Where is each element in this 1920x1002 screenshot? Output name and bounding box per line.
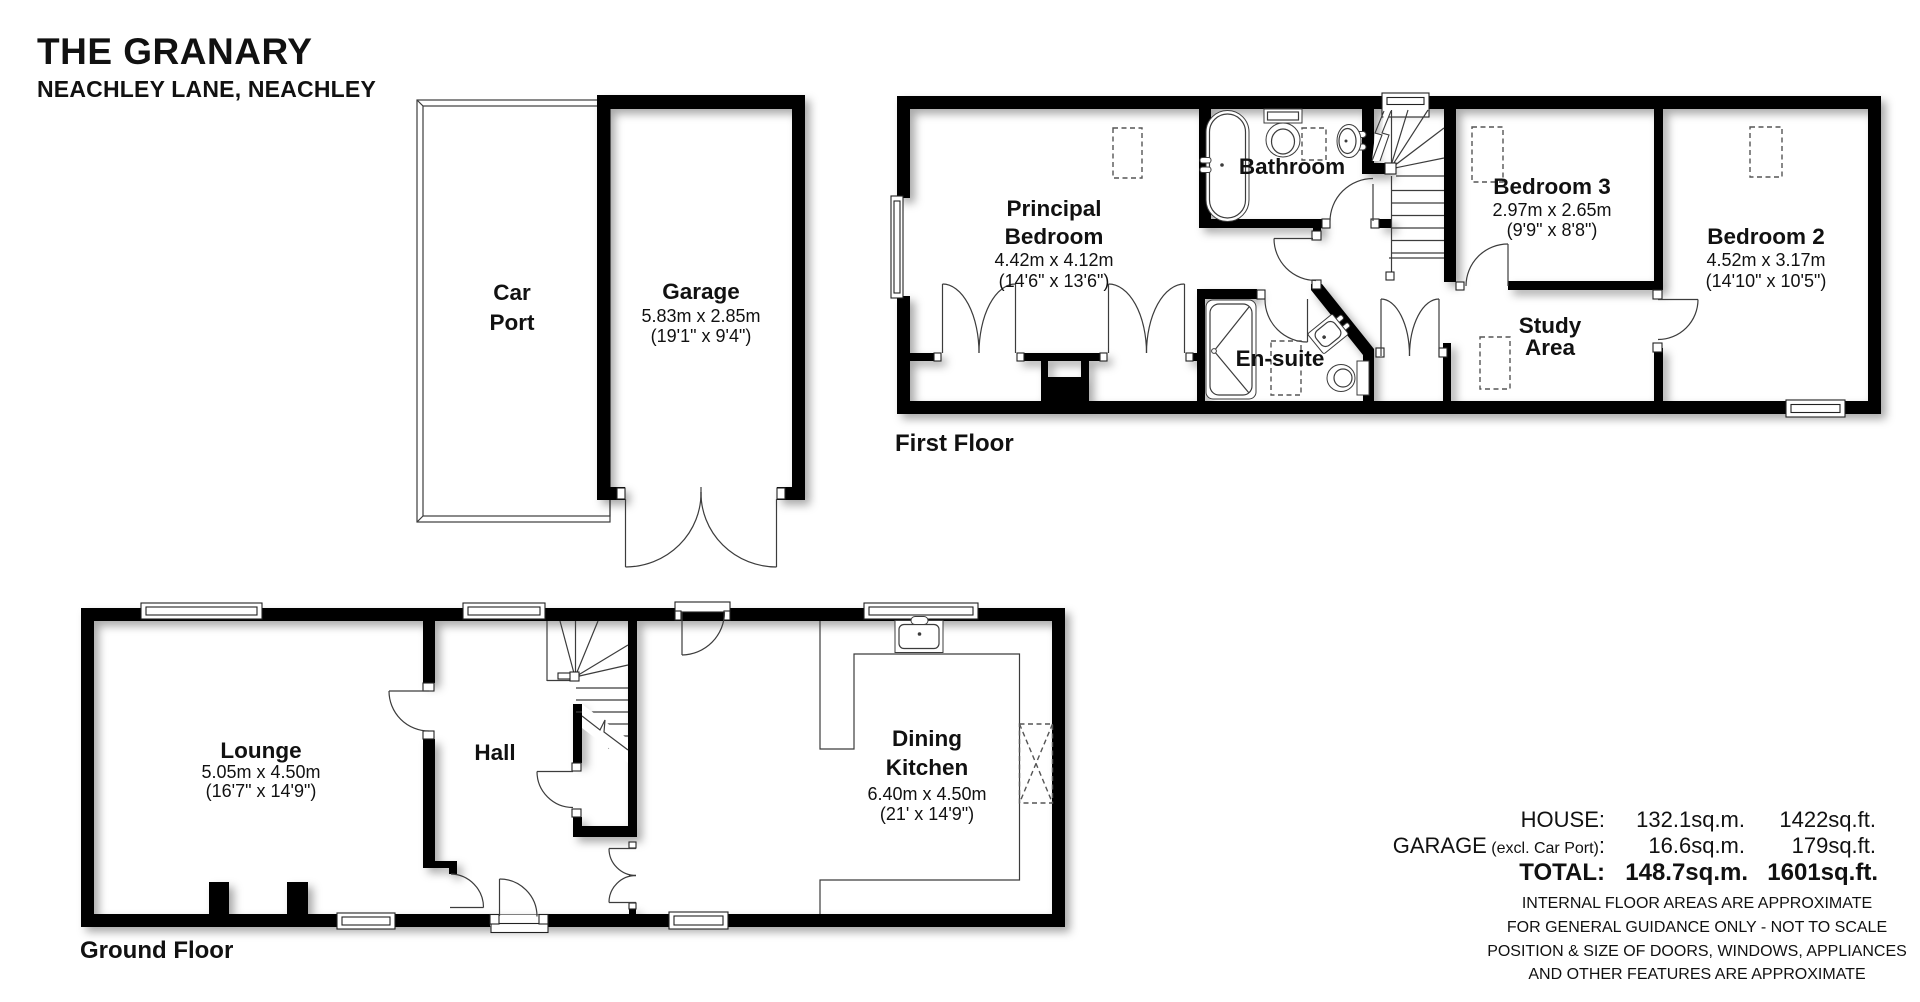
svg-text:Hall: Hall	[474, 740, 515, 765]
svg-text:Garage: Garage	[662, 279, 740, 304]
svg-text:Ground Floor: Ground Floor	[80, 937, 233, 964]
svg-text:148.7sq.m.: 148.7sq.m.	[1625, 859, 1748, 886]
svg-text:(14'10" x 10'5"): (14'10" x 10'5")	[1706, 271, 1827, 291]
svg-text:5.05m x 4.50m: 5.05m x 4.50m	[201, 762, 320, 782]
svg-text:First Floor: First Floor	[895, 430, 1014, 457]
svg-text:TOTAL:: TOTAL:	[1519, 859, 1605, 886]
svg-text:132.1sq.m.: 132.1sq.m.	[1636, 807, 1745, 832]
svg-text:AND OTHER FEATURES ARE APPROXI: AND OTHER FEATURES ARE APPROXIMATE	[1528, 966, 1865, 983]
svg-text:POSITION & SIZE OF DOORS, WIND: POSITION & SIZE OF DOORS, WINDOWS, APPLI…	[1487, 943, 1907, 960]
svg-text:Area: Area	[1525, 335, 1576, 360]
svg-text:Bathroom: Bathroom	[1239, 154, 1345, 179]
svg-text:En-suite: En-suite	[1236, 346, 1325, 371]
svg-text:THE GRANARY: THE GRANARY	[37, 31, 312, 72]
svg-text:Port: Port	[490, 310, 536, 335]
svg-text:FOR GENERAL GUIDANCE ONLY - NO: FOR GENERAL GUIDANCE ONLY - NOT TO SCALE	[1507, 919, 1887, 936]
svg-text:(19'1" x 9'4"): (19'1" x 9'4")	[651, 326, 752, 346]
svg-text:(16'7" x 14'9"): (16'7" x 14'9")	[206, 781, 317, 801]
svg-text:(9'9" x 8'8"): (9'9" x 8'8")	[1507, 220, 1598, 240]
svg-text:(21' x 14'9"): (21' x 14'9")	[880, 804, 974, 824]
svg-text:6.40m x 4.50m: 6.40m x 4.50m	[867, 784, 986, 804]
svg-text:Bedroom 2: Bedroom 2	[1707, 224, 1825, 249]
svg-text:1601sq.ft.: 1601sq.ft.	[1767, 859, 1878, 886]
svg-text:4.42m x 4.12m: 4.42m x 4.12m	[994, 250, 1113, 270]
svg-text:Lounge: Lounge	[220, 738, 301, 763]
svg-text:Kitchen: Kitchen	[886, 755, 969, 780]
svg-text:5.83m x 2.85m: 5.83m x 2.85m	[641, 306, 760, 326]
svg-text:179sq.ft.: 179sq.ft.	[1792, 833, 1876, 858]
svg-text:INTERNAL FLOOR AREAS ARE APPRO: INTERNAL FLOOR AREAS ARE APPROXIMATE	[1522, 895, 1872, 912]
svg-text:Principal: Principal	[1006, 196, 1101, 221]
svg-text:Bedroom 3: Bedroom 3	[1493, 174, 1611, 199]
svg-text:NEACHLEY LANE, NEACHLEY: NEACHLEY LANE, NEACHLEY	[37, 76, 376, 102]
svg-text:1422sq.ft.: 1422sq.ft.	[1779, 807, 1876, 832]
svg-text:Car: Car	[493, 280, 531, 305]
svg-text:2.97m x 2.65m: 2.97m x 2.65m	[1492, 200, 1611, 220]
svg-text:Bedroom: Bedroom	[1005, 224, 1104, 249]
svg-text:Dining: Dining	[892, 726, 962, 751]
svg-text:4.52m x 3.17m: 4.52m x 3.17m	[1706, 250, 1825, 270]
svg-text:HOUSE:: HOUSE:	[1521, 807, 1605, 832]
svg-text:16.6sq.m.: 16.6sq.m.	[1648, 833, 1745, 858]
svg-text:(14'6" x 13'6"): (14'6" x 13'6")	[999, 271, 1110, 291]
